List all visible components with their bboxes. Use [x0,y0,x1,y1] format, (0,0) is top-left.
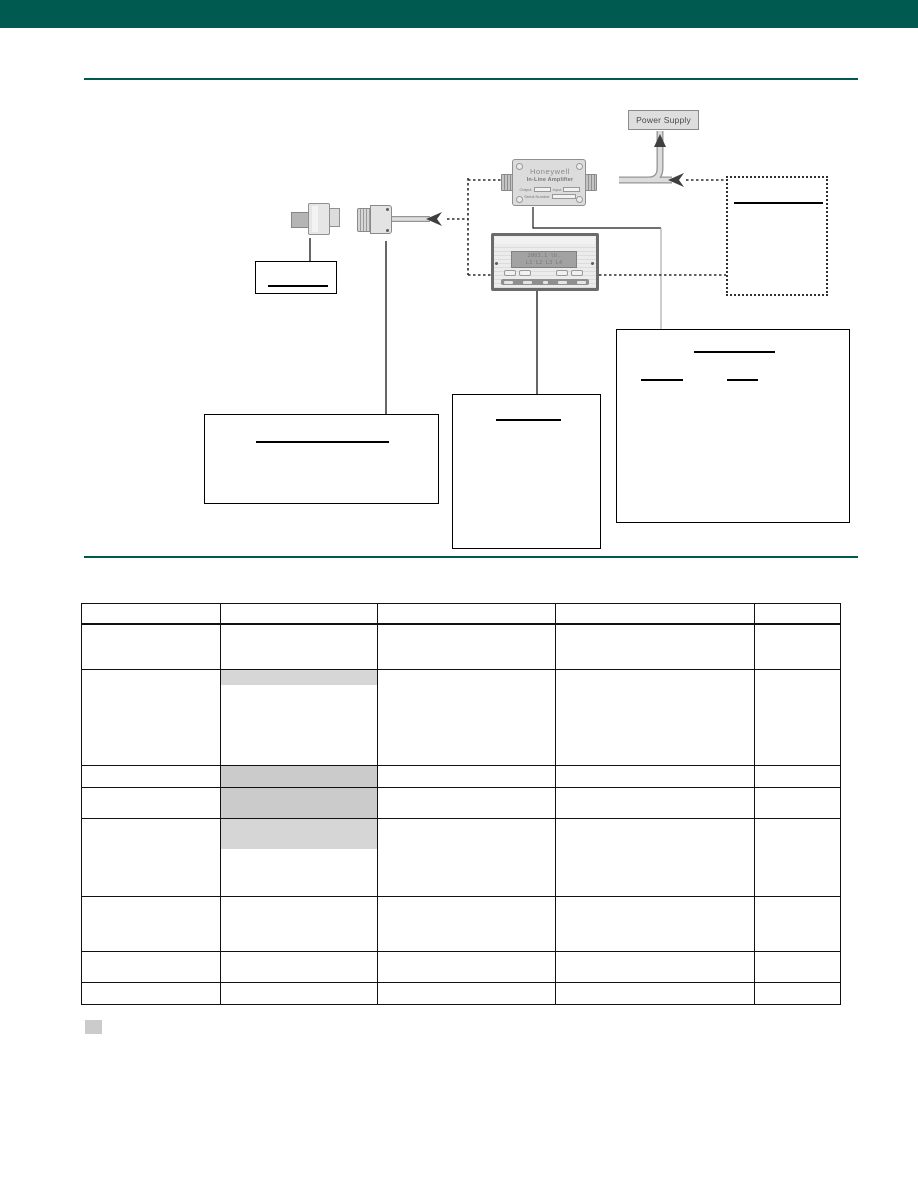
sensor-body-icon [308,203,330,235]
table-cell [755,819,841,897]
table-cell [556,952,755,983]
callout-subtitle-underline [641,379,683,381]
arrow-up-icon [654,134,666,147]
table-cell [221,983,378,1005]
amplifier-body: Honeywell In-Line Amplifier Output Input… [512,159,586,206]
lcd-line1: 2003.1 lb. [512,253,576,260]
table-row [82,952,841,983]
arrow-left-icon [668,173,684,187]
amplifier-io-row: Output Input [513,187,587,192]
amplifier-name: In-Line Amplifier [513,177,587,183]
table-cell [556,670,755,766]
display-key-strip [501,279,589,285]
table-row [82,788,841,819]
table-cell [378,952,556,983]
connector-callout-box [204,414,439,504]
power-supply-box: Power Supply [628,110,699,130]
table-cell [378,788,556,819]
table-cell [556,766,755,788]
amplifier-brand: Honeywell [513,167,587,176]
callout-title-underline [694,351,775,353]
table-cell [82,897,221,952]
display-button [519,270,531,276]
table-header-cell [378,604,556,624]
screw-icon [591,262,594,265]
amplifier-input-label: Input [553,187,562,192]
key-icon [543,281,548,284]
display-callout-box [452,394,601,549]
table-cell [378,897,556,952]
screw-icon [495,262,498,265]
table-cell [378,766,556,788]
table-cell [556,897,755,952]
spec-table [81,603,841,1005]
power-callout-box [726,176,828,296]
table-cell [755,952,841,983]
table-header-cell [82,604,221,624]
callout-title-underline [268,285,328,287]
callout-title-underline [256,441,389,443]
display-button [556,270,568,276]
table-cell [378,819,556,897]
amplifier-serial-label: Serial Number [524,194,550,199]
table-row [82,624,841,670]
table-row [82,766,841,788]
cable-connector [357,205,393,234]
table-cell [755,624,841,670]
amplifier-output-label: Output [520,187,532,192]
display-button [571,270,583,276]
power-supply-label: Power Supply [636,115,691,125]
table-cell [82,819,221,897]
sensor-callout-box [255,261,337,294]
table-cell [221,788,378,819]
table-cell [82,788,221,819]
table-row [82,983,841,1005]
table-row [82,819,841,897]
table-cell [755,766,841,788]
key-icon [504,281,513,284]
serial-field [552,194,576,199]
callout-title-underline [734,202,823,204]
table-cell [221,952,378,983]
connector-body-icon [370,205,392,234]
table-cell [221,819,378,897]
callout-title-underline [496,419,561,421]
table-cell [378,624,556,670]
table-cell [378,983,556,1005]
arrow-left-icon [426,212,442,226]
table-cell [755,983,841,1005]
table-cell [221,897,378,952]
document-page: { "page": { "banner_color": "#005a50", "… [0,0,918,1188]
table-header-cell [556,604,755,624]
table-cell [755,788,841,819]
table-cell [556,788,755,819]
table-cell [755,897,841,952]
system-diagram: Power Supply Honeywell In-Line Amplifier… [0,0,918,560]
table-cell [82,766,221,788]
table-row [82,897,841,952]
legend-swatch [85,1020,102,1034]
lcd-screen: 2003.1 lb. L1 L2 L3 L4 [511,251,577,268]
output-field [534,187,551,192]
table-header-cell [755,604,841,624]
weight-display-unit: 2003.1 lb. L1 L2 L3 L4 [491,233,599,291]
table-header-cell [221,604,378,624]
shaded-region [221,819,377,849]
table-header-row [82,604,841,624]
key-icon [558,281,567,284]
table-cell [378,670,556,766]
table-cell [221,624,378,670]
table-cell [556,983,755,1005]
input-field [563,187,580,192]
display-button [504,270,516,276]
table-cell [221,766,378,788]
callout-subtitle-underline [727,379,758,381]
table-cell [556,624,755,670]
shaded-region [221,670,377,685]
table-cell [82,983,221,1005]
table-cell [221,670,378,766]
load-sensor [291,203,341,237]
inline-amplifier: Honeywell In-Line Amplifier Output Input… [501,158,597,207]
amplifier-leader-line [533,207,661,228]
table-cell [82,670,221,766]
amplifier-serial-row: Serial Number [513,194,587,199]
table-cell [556,819,755,897]
table-cell [755,670,841,766]
table-row [82,670,841,766]
lcd-line2: L1 L2 L3 L4 [512,260,576,267]
amplifier-callout-box [616,329,850,523]
key-icon [523,281,532,284]
key-icon [577,281,586,284]
table-cell [82,952,221,983]
table-cell [82,624,221,670]
display-top-band [495,237,595,244]
